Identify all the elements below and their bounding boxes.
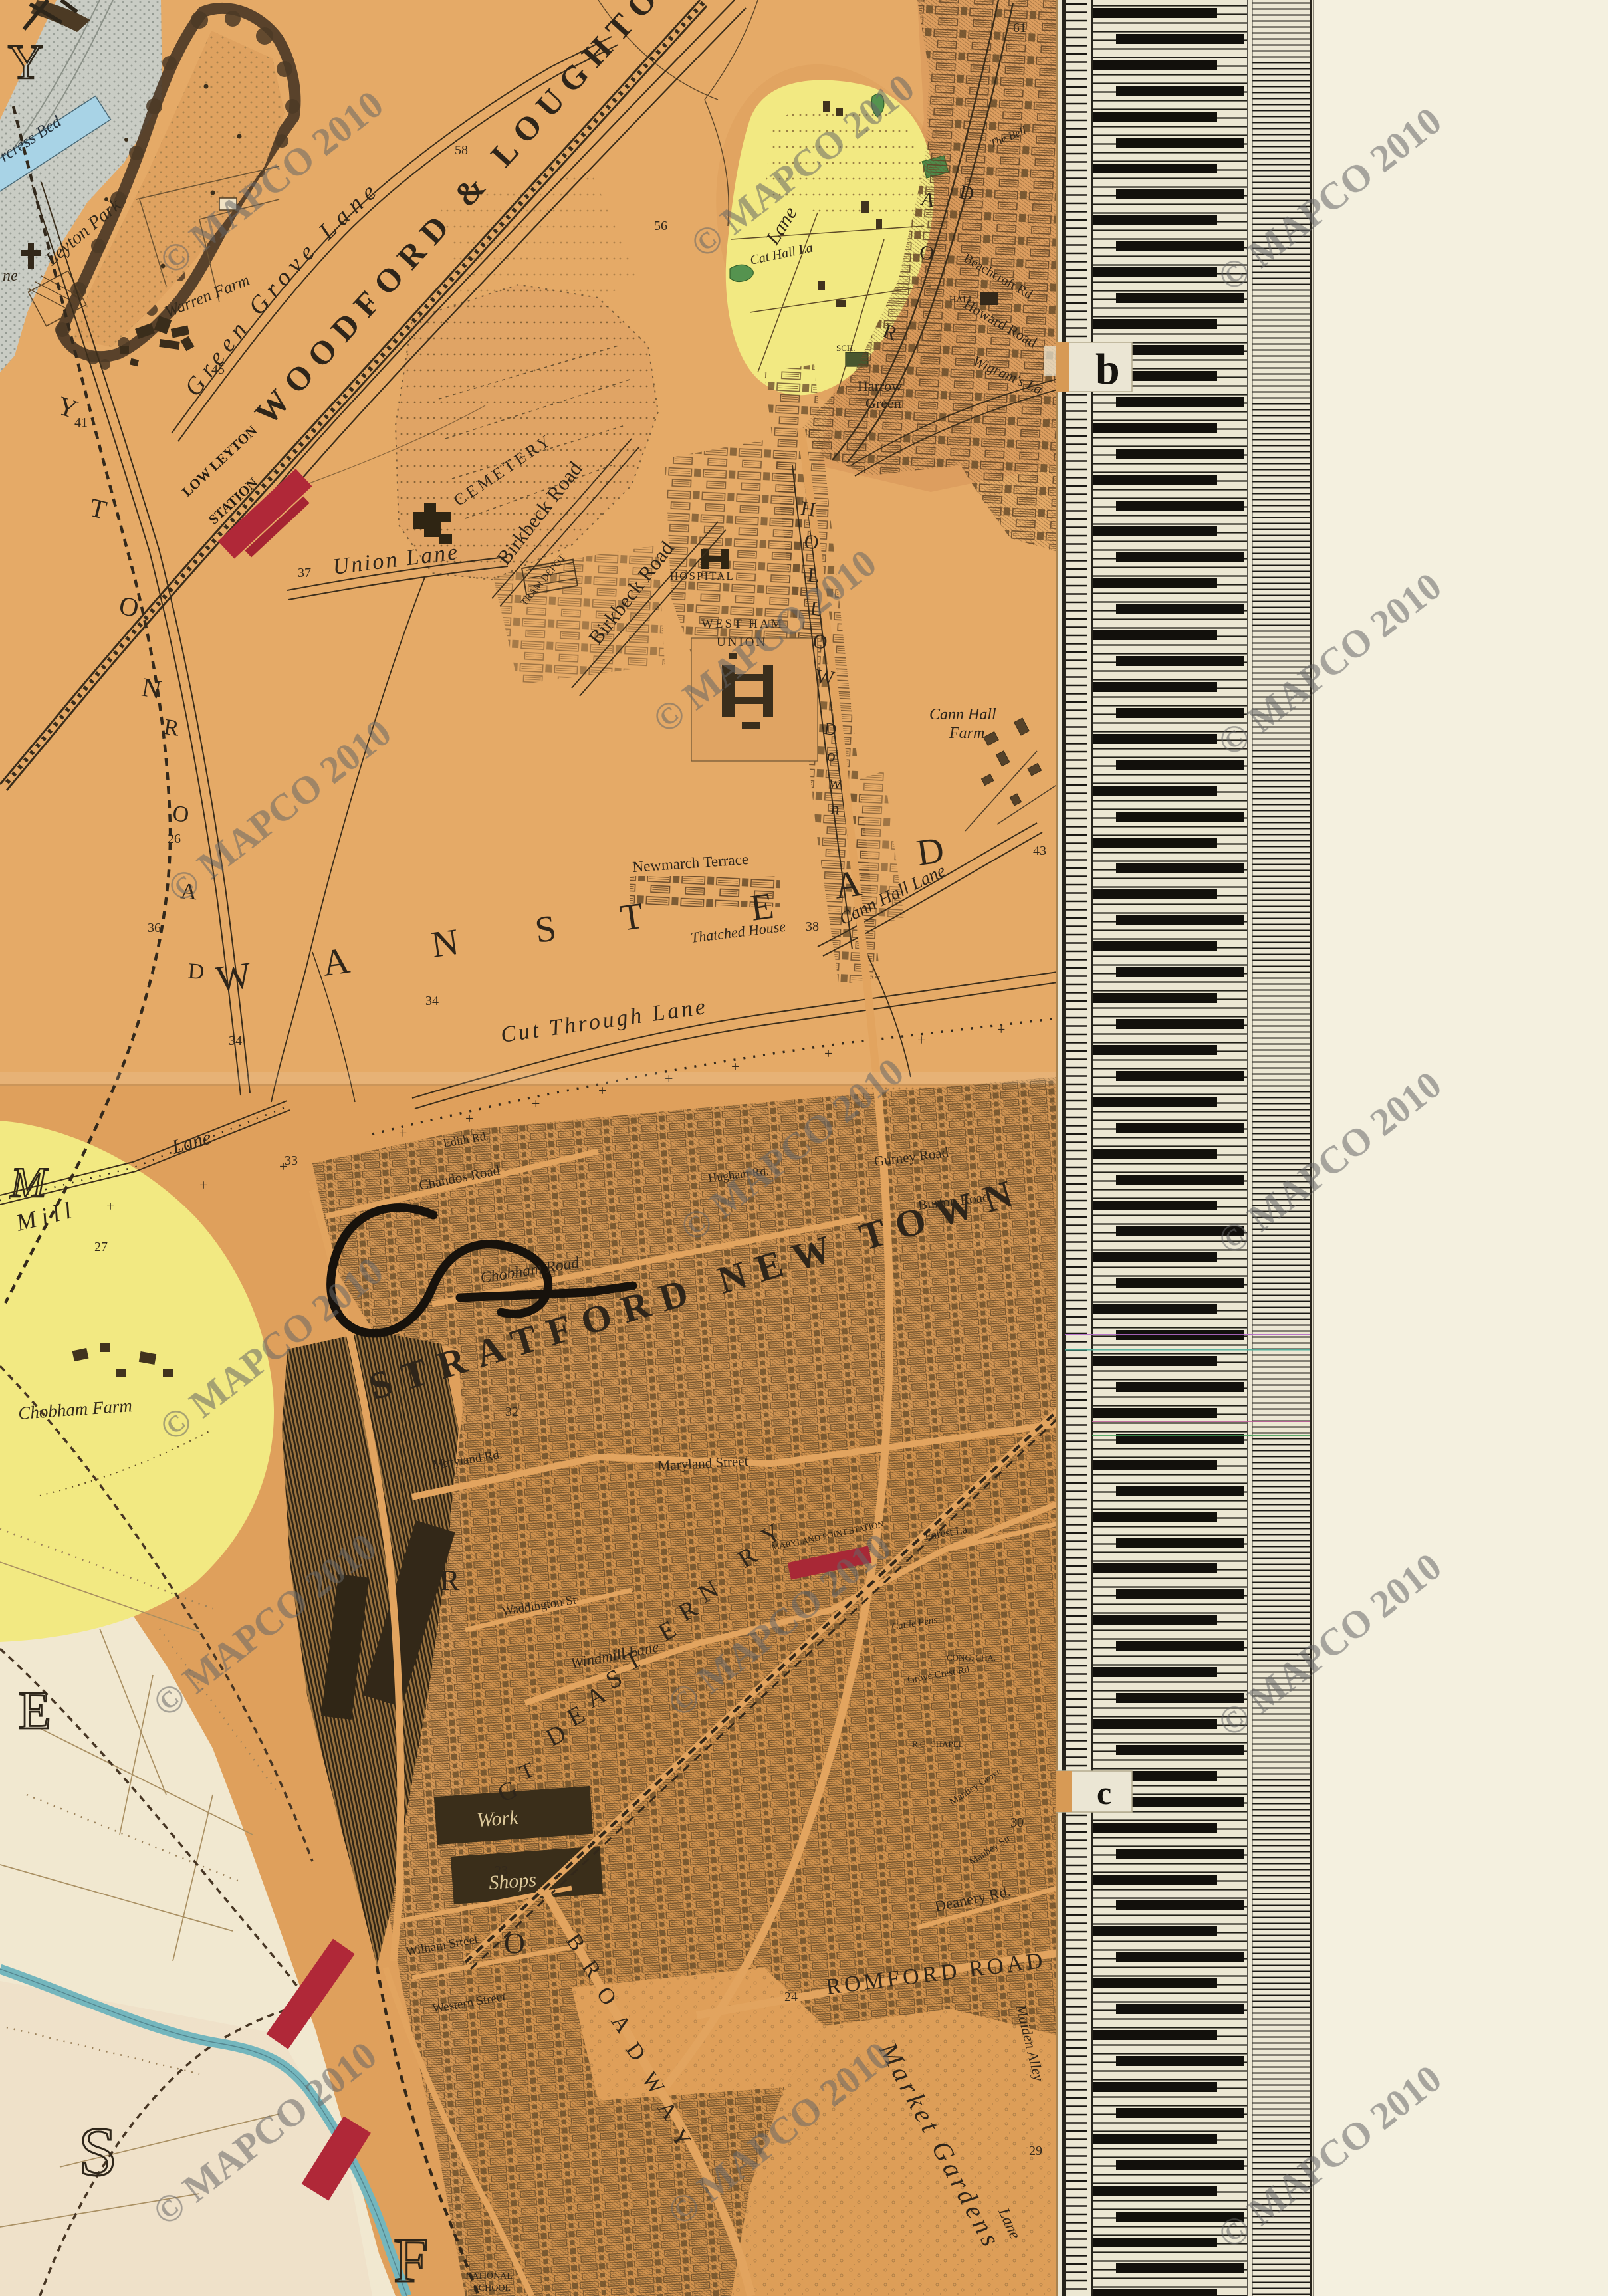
svg-text:NATIONAL: NATIONAL [465, 2271, 513, 2281]
svg-text:23: 23 [495, 1863, 508, 1878]
svg-text:61: 61 [1013, 21, 1026, 35]
svg-text:c: c [1097, 1774, 1111, 1811]
svg-text:ne: ne [3, 267, 18, 285]
svg-text:S: S [78, 2113, 117, 2190]
svg-text:D: D [823, 719, 838, 739]
svg-text:Green: Green [865, 395, 901, 411]
svg-text:H: H [800, 497, 817, 521]
svg-text:+: + [465, 1110, 473, 1127]
svg-text:CONG. CHA.: CONG. CHA. [947, 1653, 996, 1663]
svg-text:D: D [914, 830, 947, 874]
svg-text:37: 37 [298, 566, 311, 580]
svg-text:38: 38 [806, 919, 819, 934]
svg-text:R.C. CHAPEL: R.C. CHAPEL [912, 1739, 964, 1749]
svg-text:+: + [917, 1032, 925, 1048]
svg-text:41: 41 [74, 415, 88, 430]
svg-text:26: 26 [168, 832, 181, 846]
svg-text:Harrow: Harrow [858, 378, 902, 394]
svg-text:W: W [213, 955, 254, 1000]
svg-text:Work: Work [476, 1807, 519, 1831]
svg-text:M: M [10, 1159, 49, 1206]
svg-text:F: F [394, 2225, 429, 2295]
svg-text:56: 56 [654, 219, 667, 233]
svg-text:32: 32 [505, 1405, 518, 1419]
svg-text:27: 27 [94, 1240, 108, 1254]
svg-text:36: 36 [148, 921, 161, 935]
svg-text:+: + [997, 1021, 1005, 1038]
svg-text:24: 24 [784, 1990, 798, 2004]
svg-text:33: 33 [285, 1153, 298, 1168]
svg-text:58: 58 [455, 143, 468, 158]
svg-text:b: b [1095, 345, 1120, 394]
svg-text:HALL: HALL [949, 295, 974, 305]
svg-text:+: + [106, 1198, 114, 1214]
svg-text:+: + [399, 1125, 407, 1141]
svg-text:34: 34 [425, 994, 439, 1008]
svg-text:N: N [429, 921, 461, 966]
svg-text:O: O [172, 801, 190, 827]
svg-text:O: O [803, 530, 820, 554]
svg-text:29: 29 [1029, 2144, 1042, 2158]
svg-text:W: W [814, 665, 836, 690]
svg-text:SCH.: SCH. [836, 343, 856, 353]
svg-text:34: 34 [229, 1034, 242, 1048]
svg-text:Cann Hall: Cann Hall [929, 706, 996, 723]
svg-text:30: 30 [1010, 1815, 1024, 1830]
svg-text:43: 43 [1033, 844, 1046, 858]
svg-text:HOSPITAL: HOSPITAL [670, 570, 735, 582]
svg-text:Farm: Farm [949, 725, 984, 742]
svg-text:O: O [504, 1927, 525, 1960]
svg-text:E: E [19, 1682, 51, 1740]
svg-text:45: 45 [211, 362, 225, 377]
svg-text:Y: Y [8, 35, 43, 90]
svg-text:+: + [824, 1045, 832, 1062]
svg-text:O: O [812, 630, 829, 654]
svg-text:+: + [532, 1095, 540, 1112]
svg-text:SCHOOL: SCHOOL [473, 2283, 511, 2293]
svg-text:D: D [187, 959, 205, 984]
svg-text:+: + [199, 1177, 207, 1193]
svg-text:R: R [440, 1564, 460, 1597]
